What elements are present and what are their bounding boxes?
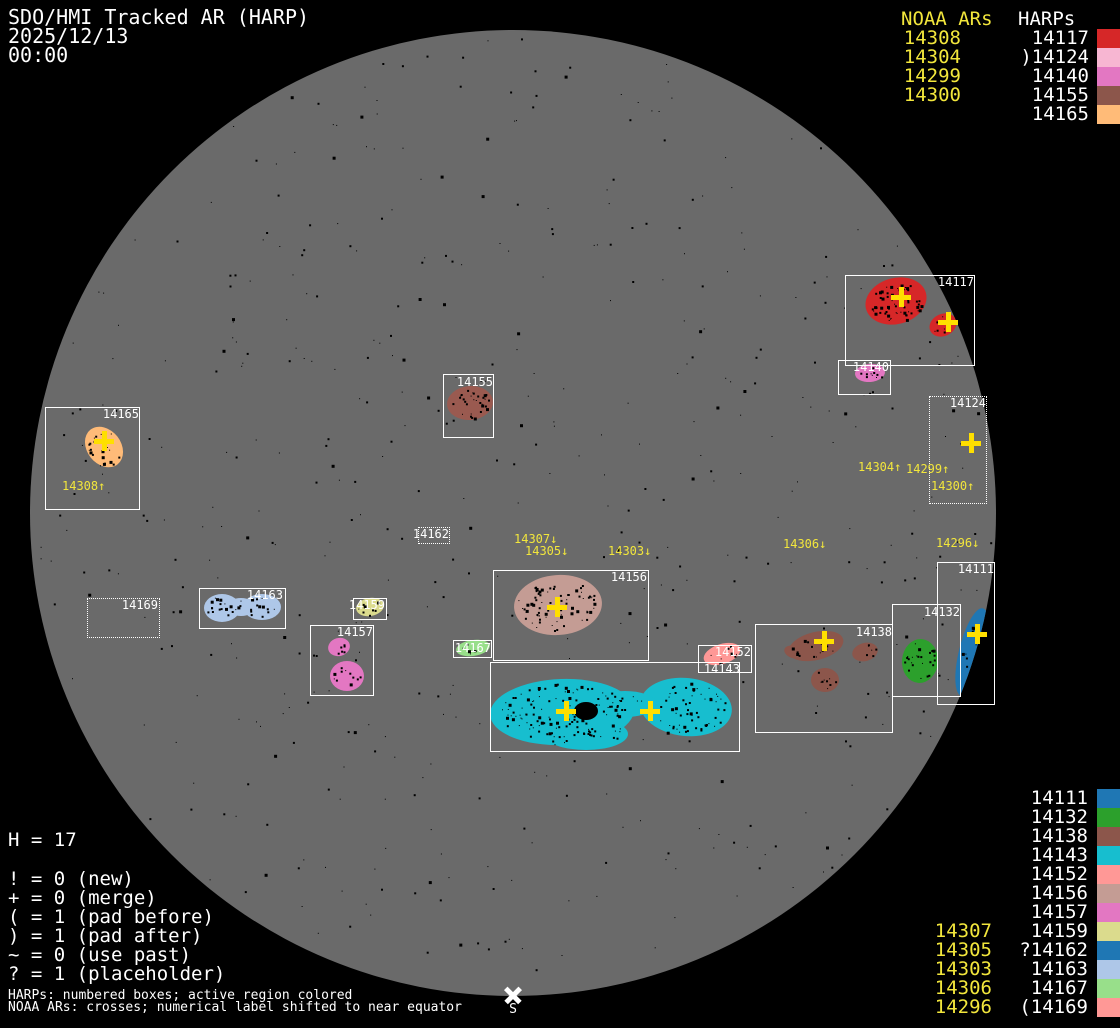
- noaa-cross-icon: [814, 631, 834, 651]
- harp-color-swatch: [1097, 789, 1120, 808]
- harp-box-14143: [490, 662, 740, 752]
- harp-color-swatch: [1097, 998, 1120, 1017]
- harp-box-label-14169: 14169: [122, 599, 158, 611]
- harp-list-row: 14165: [0, 105, 1120, 124]
- noaa-cross-icon: [556, 701, 576, 721]
- noaa-cross-icon: [640, 701, 660, 721]
- harp-box-label-14143: 14143: [704, 663, 740, 675]
- harp-color-swatch: [1097, 827, 1120, 846]
- noaa-ar-label: 14303↓: [608, 545, 651, 558]
- harp-color-swatch: [1097, 941, 1120, 960]
- harp-box-label-14165: 14165: [103, 408, 139, 420]
- harp-number: 14165: [980, 105, 1089, 124]
- harp-color-swatch: [1097, 846, 1120, 865]
- harp-list-row: 14111: [0, 789, 1120, 808]
- harp-box-label-14167: 14167: [455, 642, 491, 654]
- harp-color-swatch: [1097, 67, 1120, 86]
- harp-color-swatch: [1097, 29, 1120, 48]
- noaa-ar-label: 14300↑: [931, 480, 974, 493]
- harp-color-swatch: [1097, 48, 1120, 67]
- noaa-ar-number: 14300: [860, 86, 961, 105]
- harp-box-label-14159: 14159: [349, 599, 385, 611]
- harp-box-label-14138: 14138: [856, 626, 892, 638]
- noaa-cross-icon: [547, 597, 567, 617]
- harp-color-swatch: [1097, 903, 1120, 922]
- harp-box-label-14155: 14155: [457, 376, 493, 388]
- harp-box-label-14157: 14157: [337, 626, 373, 638]
- harp-box-label-14163: 14163: [247, 589, 283, 601]
- harp-box-label-14162: 14162: [413, 528, 449, 540]
- noaa-ar-label: 14304↑: [858, 461, 901, 474]
- noaa-ar-label: 14305↓: [525, 545, 568, 558]
- harp-box-label-14156: 14156: [611, 571, 647, 583]
- noaa-ar-label: 14299↑: [906, 463, 949, 476]
- symbol-legend: ! = 0 (new)+ = 0 (merge)( = 1 (pad befor…: [8, 870, 225, 984]
- harp-number: (14169: [950, 998, 1088, 1017]
- harp-box-label-14117: 14117: [938, 276, 974, 288]
- harp-box-14165: [45, 407, 140, 510]
- harp-color-swatch: [1097, 979, 1120, 998]
- legend-line: ? = 1 (placeholder): [8, 965, 225, 984]
- harp-box-label-14124: 14124: [950, 397, 986, 409]
- harp-list-row: 14138: [0, 827, 1120, 846]
- noaa-cross-icon: [94, 431, 114, 451]
- south-pole-label: S: [505, 1003, 521, 1016]
- noaa-cross-icon: [938, 312, 958, 332]
- harp-tracker-screen: 1411714140141241416514155141621416914163…: [0, 0, 1120, 1024]
- harp-box-label-14152: 14152: [715, 646, 751, 658]
- footnote-noaa: NOAA ARs: crosses; numerical label shift…: [8, 1002, 462, 1014]
- harp-list-row: 14143: [0, 846, 1120, 865]
- noaa-ar-label: 14308↑: [62, 480, 105, 493]
- noaa-cross-icon: [961, 433, 981, 453]
- harp-color-swatch: [1097, 865, 1120, 884]
- harp-color-swatch: [1097, 86, 1120, 105]
- harp-list-row: 14132: [0, 808, 1120, 827]
- harp-box-label-14111: 14111: [958, 563, 994, 575]
- noaa-cross-icon: [967, 624, 987, 644]
- harp-color-swatch: [1097, 808, 1120, 827]
- harp-box-label-14140: 14140: [853, 361, 889, 373]
- harp-color-swatch: [1097, 105, 1120, 124]
- noaa-cross-icon: [891, 287, 911, 307]
- harp-color-swatch: [1097, 960, 1120, 979]
- harp-count-label: H = 17: [8, 831, 77, 850]
- harp-list-row: 1430014155: [0, 86, 1120, 105]
- noaa-ar-label: 14296↓: [936, 537, 979, 550]
- harp-color-swatch: [1097, 922, 1120, 941]
- noaa-ar-label: 14306↓: [783, 538, 826, 551]
- harp-color-swatch: [1097, 884, 1120, 903]
